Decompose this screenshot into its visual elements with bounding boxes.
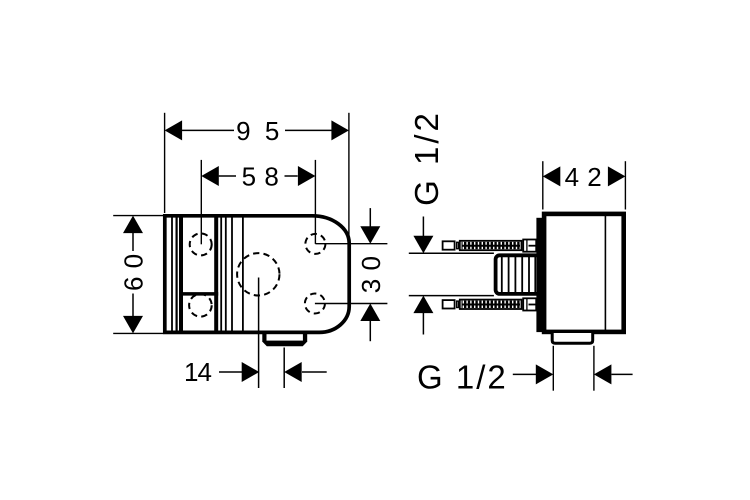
svg-text:4 2: 4 2 <box>565 162 603 192</box>
svg-text:14: 14 <box>184 357 211 387</box>
svg-text:6 0: 6 0 <box>119 253 149 291</box>
svg-text:G 1/2: G 1/2 <box>417 358 508 395</box>
svg-text:G 1/2: G 1/2 <box>408 110 445 206</box>
svg-text:5 8: 5 8 <box>242 162 280 192</box>
svg-text:9 5: 9 5 <box>236 116 283 146</box>
svg-text:3 0: 3 0 <box>356 256 386 294</box>
